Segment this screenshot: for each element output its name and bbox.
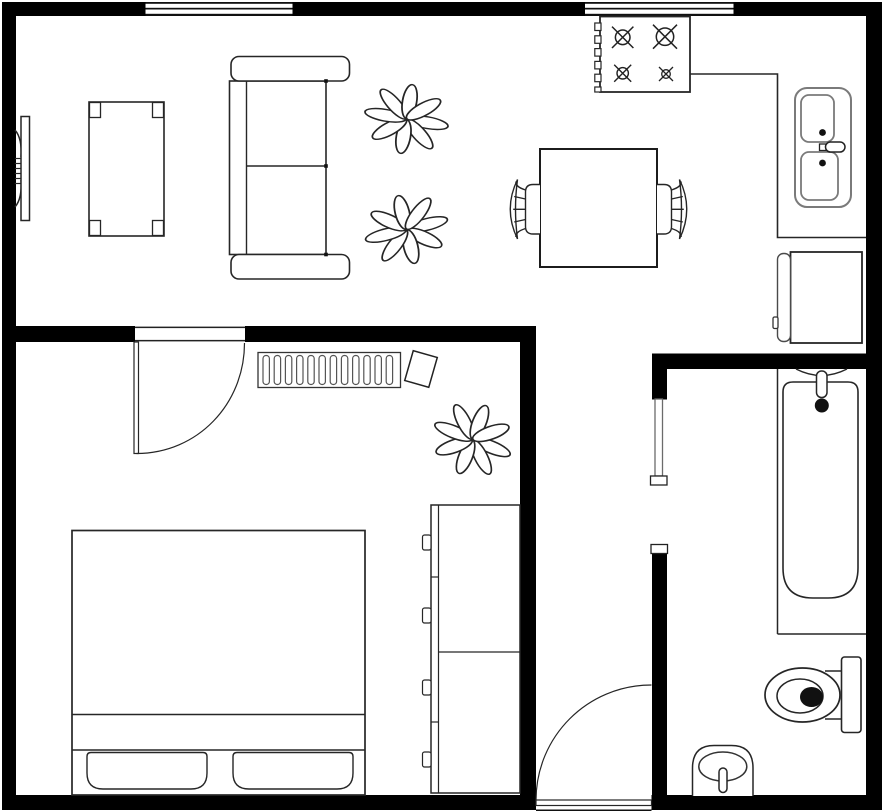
table-leg: [153, 221, 164, 236]
sink-basin-bottom: [801, 152, 838, 200]
sofa-armrest-bottom: [231, 255, 350, 280]
wall-top: [2, 2, 882, 16]
refrigerator[interactable]: [773, 252, 862, 343]
sink-faucet: [826, 142, 846, 152]
entry-door[interactable]: [536, 685, 652, 811]
dining-table[interactable]: [540, 149, 657, 267]
wall-left: [2, 2, 16, 810]
sofa-body: [230, 81, 327, 255]
kitchen-sink[interactable]: [795, 88, 851, 207]
wall-bottom-left: [2, 795, 536, 810]
toilet[interactable]: [765, 657, 861, 733]
wall-bottom-right: [652, 795, 883, 810]
door-leaf: [134, 342, 139, 454]
bed[interactable]: [72, 531, 365, 796]
dresser-knob: [423, 608, 432, 623]
dining-chair-right[interactable]: [657, 180, 687, 240]
sliding-door[interactable]: [651, 399, 668, 554]
sink-drain: [819, 129, 826, 136]
wall-bathroom-left-upper: [652, 354, 667, 400]
wall-bedroom-right: [520, 326, 536, 795]
window-top-left: [146, 2, 293, 16]
wall-bedroom-divider: [2, 326, 536, 342]
sofa-armrest-top: [231, 57, 350, 82]
plant-living-1[interactable]: [359, 77, 454, 160]
door-opening: [135, 326, 245, 342]
dresser-knob: [423, 680, 432, 695]
plant-living-2[interactable]: [357, 186, 456, 274]
toilet-seat-dot: [800, 687, 823, 707]
bed-pillow: [233, 753, 353, 790]
dresser-body: [431, 505, 520, 793]
sliding-door-panel: [655, 399, 663, 476]
entry-door-leaf: [536, 800, 652, 806]
tub-drain: [815, 399, 829, 413]
burner: [614, 65, 631, 82]
floor-plan-canvas: [0, 0, 884, 812]
sofa-dot: [324, 253, 328, 257]
dining-chair-left[interactable]: [510, 180, 540, 240]
pedestal-sink[interactable]: [693, 746, 754, 797]
dresser[interactable]: [423, 505, 521, 793]
wall-bathroom-left-lower: [652, 554, 667, 796]
table-leg: [153, 103, 164, 118]
bathtub[interactable]: [783, 369, 858, 598]
fridge-handle: [773, 317, 778, 329]
tv-screen: [21, 117, 30, 221]
bedroom-door[interactable]: [134, 326, 245, 454]
sink-faucet: [719, 768, 727, 793]
door-jamb-line: [135, 327, 245, 329]
entry-threshold-line: [536, 810, 652, 812]
sofa-dot: [324, 79, 328, 83]
table-leg: [90, 103, 101, 118]
burner: [612, 27, 633, 48]
sink-basin-top: [801, 95, 834, 142]
door-swing-arc: [137, 343, 245, 454]
sink-drain: [819, 160, 826, 167]
toilet-tank: [842, 657, 862, 733]
door-jamb-line: [135, 340, 245, 342]
wall-tv[interactable]: [15, 117, 30, 221]
tub-faucet: [817, 371, 828, 398]
floor-plan-svg: [0, 0, 884, 812]
wall-jamb-cap: [651, 545, 668, 554]
dresser-knob: [423, 535, 432, 550]
wall-right: [866, 2, 882, 810]
wall-bathroom-top: [652, 354, 866, 370]
rack-box: [405, 351, 438, 388]
window-top-right: [585, 2, 734, 16]
entry-swing-arc: [536, 685, 652, 801]
tub-basin: [783, 382, 858, 598]
fridge-body: [791, 252, 863, 343]
fridge-door: [778, 254, 791, 342]
stove[interactable]: [595, 17, 690, 93]
bed-pillow: [87, 753, 207, 790]
sliding-door-cap: [651, 476, 668, 485]
dresser-knob: [423, 752, 432, 767]
sofa[interactable]: [230, 57, 350, 280]
burner: [659, 67, 673, 81]
clothes-rack[interactable]: [258, 351, 437, 388]
coffee-table[interactable]: [89, 102, 164, 236]
sofa-dot: [324, 164, 328, 168]
plant-bedroom[interactable]: [421, 391, 523, 489]
burner: [653, 25, 677, 49]
table-leg: [90, 221, 101, 236]
